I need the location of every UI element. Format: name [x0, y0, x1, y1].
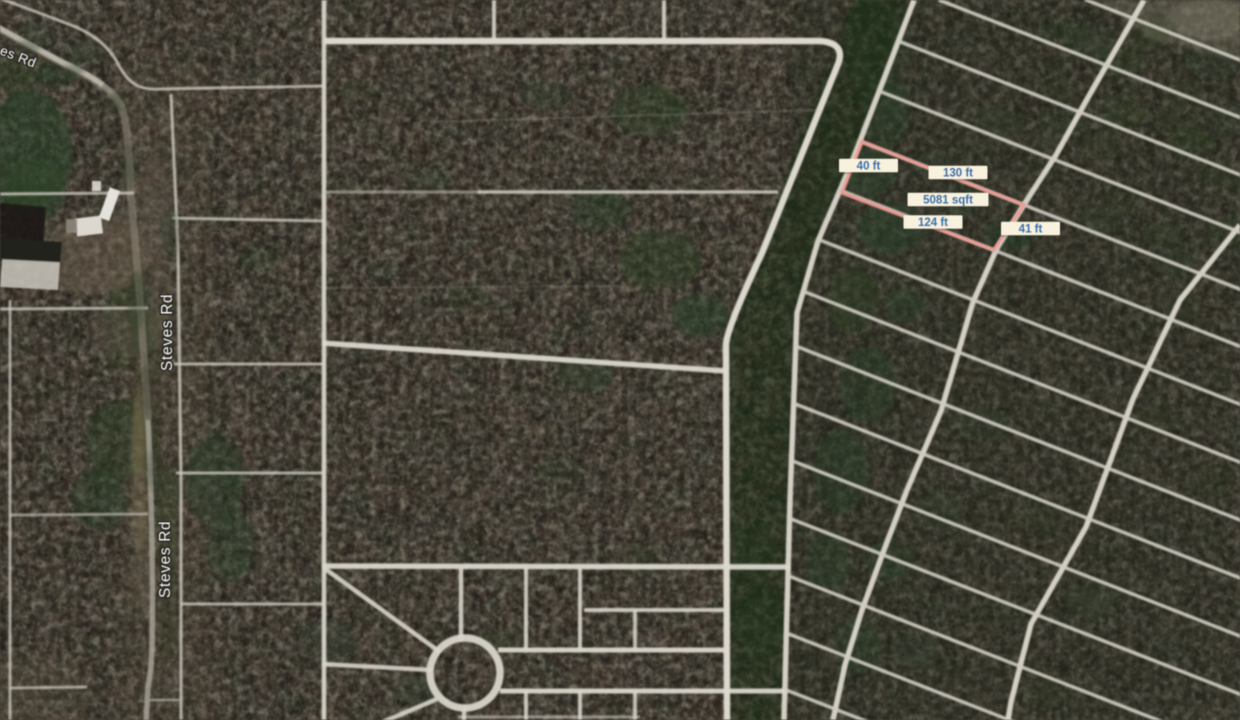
- svg-text:40 ft: 40 ft: [857, 161, 881, 173]
- svg-text:41 ft: 41 ft: [1019, 224, 1043, 236]
- svg-text:130 ft: 130 ft: [943, 168, 973, 180]
- svg-text:5081 sqft: 5081 sqft: [923, 195, 973, 207]
- svg-text:Steves Rd: Steves Rd: [157, 521, 174, 598]
- svg-text:124 ft: 124 ft: [918, 217, 948, 229]
- svg-text:Steves Rd: Steves Rd: [159, 294, 176, 371]
